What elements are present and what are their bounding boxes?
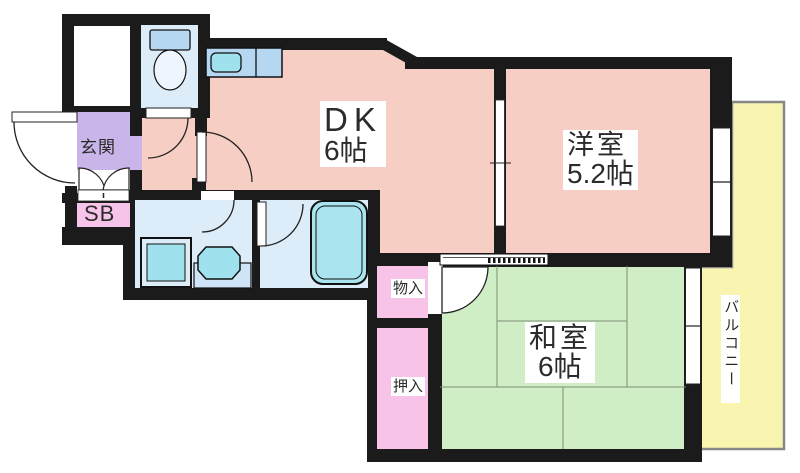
dk-name: DK (324, 103, 382, 137)
label-dk: DK 6帖 (320, 101, 386, 167)
label-storage: 物入 (391, 279, 425, 298)
japanese-name: 和室 (529, 324, 591, 353)
western-size: 5.2帖 (567, 160, 634, 189)
bathtub (311, 201, 367, 284)
genkan-double-doors (78, 168, 129, 201)
wall-genkan-stub-top (130, 104, 142, 136)
kitchen-sink (211, 53, 241, 72)
wall-top-right (405, 57, 732, 69)
label-balcony: バルコニー (721, 295, 740, 403)
dk-size: 6帖 (324, 137, 382, 166)
label-closet: 押入 (391, 377, 425, 396)
wall-bottom (367, 449, 702, 462)
floorplan-page: DK 6帖 洋室 5.2帖 和室 6帖 玄関 SB 物入 押入 バルコニー (0, 0, 800, 473)
washing-machine (141, 238, 191, 287)
label-entrance: 玄関 (80, 139, 116, 156)
label-western-room: 洋室 5.2帖 (563, 130, 638, 190)
japanese-door-gap (428, 262, 443, 314)
genkan-floor-bridge (130, 136, 142, 170)
sliding-door-dk-japanese (440, 254, 548, 265)
western-balcony-window (712, 128, 731, 236)
label-japanese-room: 和室 6帖 (525, 322, 595, 383)
western-name: 洋室 (567, 132, 634, 160)
entrance-door-gap (65, 120, 77, 186)
japanese-size: 6帖 (538, 353, 591, 382)
floorplan-svg (0, 0, 800, 473)
toilet-fixture (150, 30, 190, 90)
kitchen-counter (206, 48, 282, 77)
label-shoe-box: SB (84, 203, 115, 225)
utility-room-floor (74, 26, 130, 106)
toilet-door-gap (146, 108, 191, 118)
japanese-balcony-window (685, 268, 701, 384)
washroom-door-gap (201, 191, 234, 200)
